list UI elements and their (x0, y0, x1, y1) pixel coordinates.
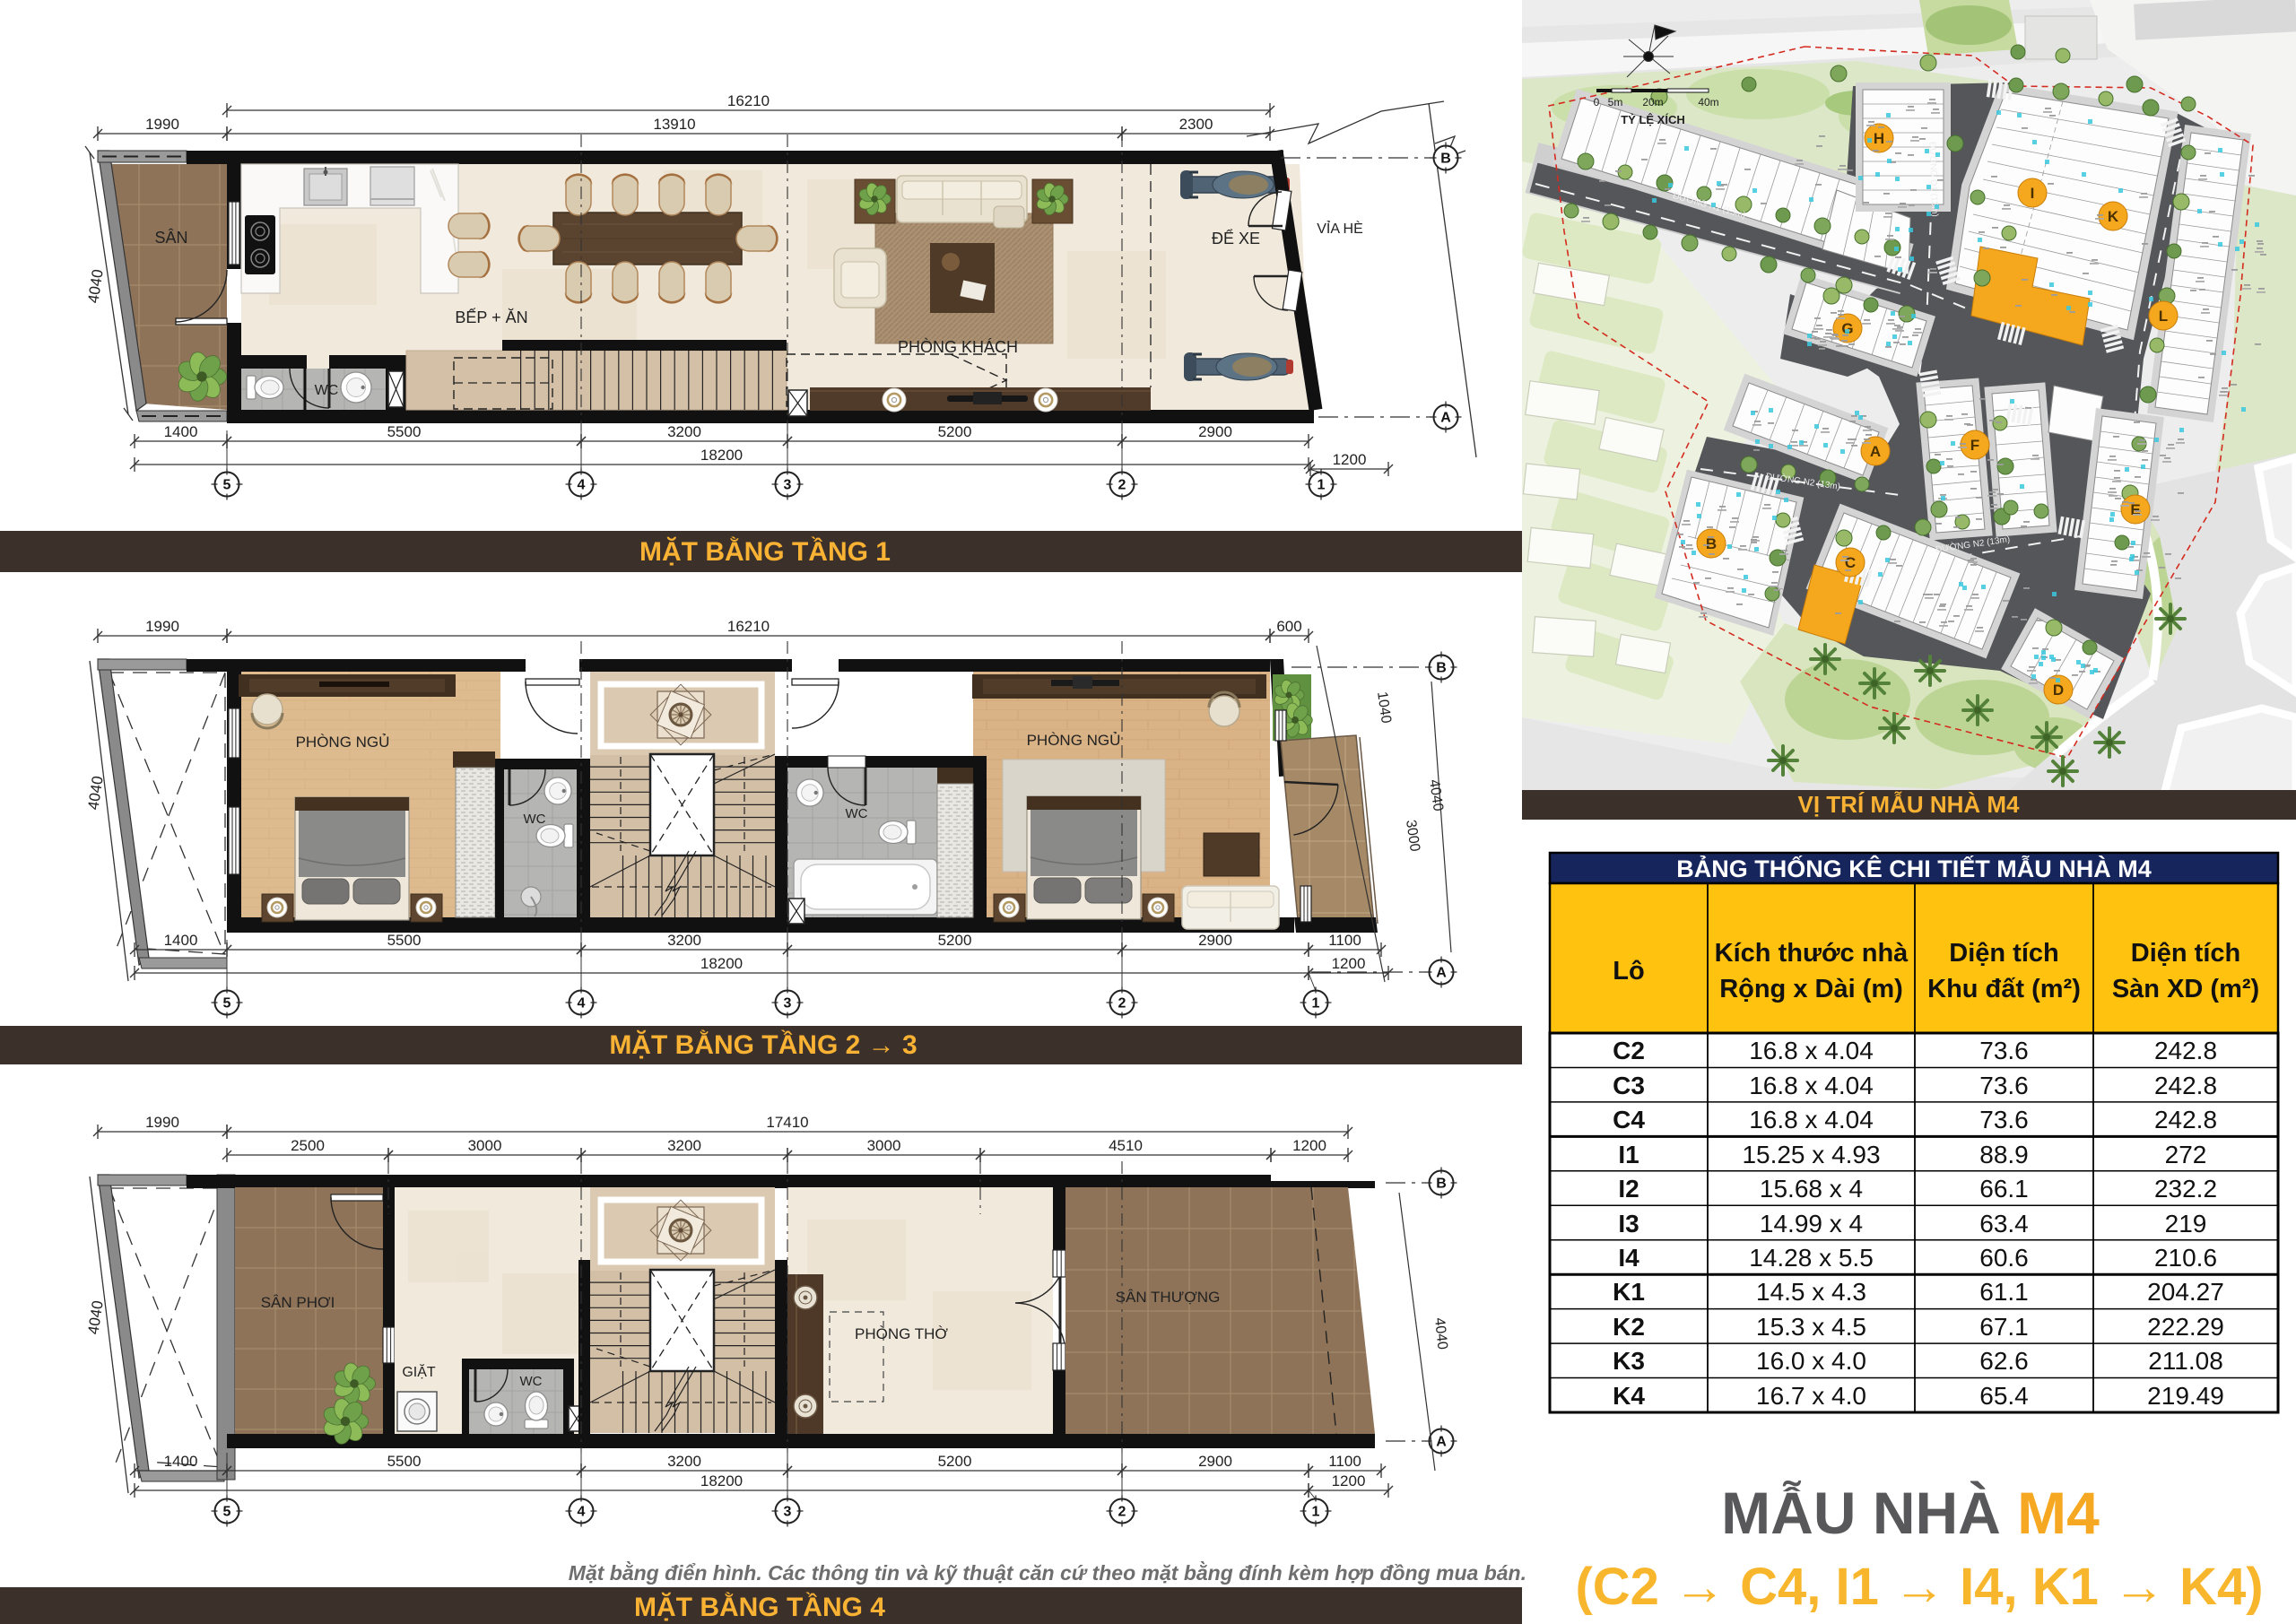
svg-text:219: 219 (2165, 1210, 2207, 1238)
svg-text:5m: 5m (1608, 96, 1623, 109)
svg-text:1200: 1200 (1332, 955, 1366, 972)
svg-text:2300: 2300 (1179, 116, 1213, 133)
svg-text:18200: 18200 (700, 955, 743, 972)
svg-text:A: A (1436, 966, 1447, 981)
svg-text:(C2 → C4, I1 → I4, K1 → K4): (C2 → C4, I1 → I4, K1 → K4) (1575, 1558, 2263, 1616)
svg-text:C4: C4 (1613, 1106, 1645, 1133)
svg-text:I3: I3 (1618, 1210, 1639, 1238)
svg-text:5200: 5200 (938, 932, 972, 949)
svg-text:4: 4 (578, 478, 586, 493)
svg-text:I2: I2 (1618, 1175, 1639, 1203)
svg-text:3200: 3200 (667, 1453, 701, 1470)
svg-text:2: 2 (1118, 1505, 1126, 1520)
svg-text:4: 4 (578, 996, 586, 1012)
svg-text:PHÒNG NGỦ: PHÒNG NGỦ (296, 734, 390, 751)
svg-text:I1: I1 (1618, 1141, 1639, 1168)
svg-text:211.08: 211.08 (2148, 1347, 2223, 1375)
svg-text:1: 1 (1318, 478, 1326, 493)
svg-text:232.2: 232.2 (2154, 1175, 2217, 1203)
svg-text:BẾP + ĂN: BẾP + ĂN (455, 308, 527, 326)
svg-text:A: A (1436, 1435, 1447, 1450)
svg-text:0: 0 (1594, 96, 1600, 109)
svg-text:WC: WC (846, 806, 868, 821)
svg-text:2500: 2500 (291, 1137, 325, 1154)
svg-text:BẢNG THỐNG KÊ CHI TIẾT MẪU NHÀ: BẢNG THỐNG KÊ CHI TIẾT MẪU NHÀ M4 (1676, 854, 2152, 882)
svg-text:VỊ TRÍ MẪU NHÀ M4: VỊ TRÍ MẪU NHÀ M4 (1798, 791, 2021, 818)
svg-text:WC: WC (315, 383, 339, 398)
svg-text:1100: 1100 (1328, 1453, 1361, 1470)
svg-text:WC: WC (520, 1374, 543, 1389)
svg-text:MẶT BẰNG TẦNG 1: MẶT BẰNG TẦNG 1 (639, 536, 891, 567)
svg-text:1100: 1100 (1328, 932, 1361, 949)
svg-text:PHÒNG THỜ: PHÒNG THỜ (855, 1325, 948, 1342)
svg-text:I: I (2031, 185, 2035, 202)
svg-text:16.0 x 4.0: 16.0 x 4.0 (1756, 1347, 1866, 1375)
svg-text:15.25 x 4.93: 15.25 x 4.93 (1742, 1141, 1880, 1168)
svg-text:60.6: 60.6 (1979, 1244, 2029, 1272)
svg-text:1400: 1400 (164, 1453, 198, 1470)
svg-text:16.8 x 4.04: 16.8 x 4.04 (1749, 1037, 1874, 1064)
svg-text:MẪU NHÀ M4: MẪU NHÀ M4 (1721, 1480, 2100, 1546)
svg-text:14.28 x 5.5: 14.28 x 5.5 (1749, 1244, 1874, 1272)
svg-text:5: 5 (223, 1505, 231, 1520)
svg-text:222.29: 222.29 (2147, 1313, 2224, 1341)
svg-text:GIẶT: GIẶT (402, 1363, 436, 1380)
svg-text:16.8 x 4.04: 16.8 x 4.04 (1749, 1072, 1874, 1099)
svg-text:3200: 3200 (667, 932, 701, 949)
svg-text:I4: I4 (1618, 1244, 1639, 1272)
svg-text:1200: 1200 (1332, 1472, 1366, 1489)
svg-text:K1: K1 (1613, 1278, 1645, 1306)
svg-text:PHÒNG KHÁCH: PHÒNG KHÁCH (898, 337, 1018, 356)
svg-text:PHÒNG NGỦ: PHÒNG NGỦ (1027, 732, 1121, 749)
svg-text:3200: 3200 (667, 423, 701, 440)
svg-text:Diện tích: Diện tích (2131, 939, 2240, 968)
svg-text:5: 5 (223, 478, 231, 493)
svg-text:61.1: 61.1 (1979, 1278, 2029, 1306)
svg-text:16.8 x 4.04: 16.8 x 4.04 (1749, 1106, 1874, 1133)
svg-text:Khu đất (m²): Khu đất (m²) (1927, 975, 2081, 1003)
svg-text:1: 1 (1312, 996, 1320, 1012)
svg-text:17410: 17410 (766, 1114, 808, 1131)
svg-text:204.27: 204.27 (2147, 1278, 2224, 1306)
svg-text:1: 1 (1312, 1505, 1320, 1520)
svg-text:5: 5 (223, 996, 231, 1012)
svg-text:Sàn XD (m²): Sàn XD (m²) (2112, 975, 2259, 1003)
svg-text:16210: 16210 (727, 618, 770, 635)
svg-text:SÂN PHƠI: SÂN PHƠI (261, 1294, 335, 1311)
svg-text:1990: 1990 (145, 1114, 179, 1131)
svg-text:K3: K3 (1613, 1347, 1645, 1375)
svg-text:3000: 3000 (867, 1137, 901, 1154)
svg-text:Rộng x Dài (m): Rộng x Dài (m) (1719, 975, 1903, 1003)
svg-text:2: 2 (1118, 478, 1126, 493)
svg-text:210.6: 210.6 (2154, 1244, 2217, 1272)
svg-text:67.1: 67.1 (1979, 1313, 2029, 1341)
svg-text:VỈA HÈ: VỈA HÈ (1317, 220, 1363, 237)
svg-text:5500: 5500 (387, 1453, 422, 1470)
svg-text:MẶT BẰNG TẦNG 2 → 3: MẶT BẰNG TẦNG 2 → 3 (609, 1029, 917, 1060)
svg-text:5500: 5500 (387, 423, 422, 440)
svg-text:SÂN THƯỢNG: SÂN THƯỢNG (1116, 1289, 1221, 1306)
svg-text:14.99 x 4: 14.99 x 4 (1760, 1210, 1863, 1238)
svg-text:16210: 16210 (727, 92, 770, 109)
svg-text:5200: 5200 (938, 1453, 972, 1470)
svg-text:242.8: 242.8 (2154, 1072, 2217, 1099)
svg-text:F: F (1970, 437, 1979, 454)
svg-text:3: 3 (784, 996, 792, 1012)
svg-text:62.6: 62.6 (1979, 1347, 2029, 1375)
svg-text:A: A (1870, 443, 1881, 460)
svg-text:WC: WC (524, 812, 546, 827)
svg-text:219.49: 219.49 (2147, 1382, 2224, 1410)
svg-text:C3: C3 (1613, 1072, 1645, 1099)
svg-text:20m: 20m (1642, 96, 1663, 109)
svg-text:3200: 3200 (667, 1137, 701, 1154)
svg-text:A: A (1440, 411, 1451, 426)
svg-text:88.9: 88.9 (1979, 1141, 2029, 1168)
svg-text:B: B (1436, 661, 1447, 676)
svg-text:1200: 1200 (1292, 1137, 1326, 1154)
svg-text:E: E (2130, 501, 2140, 518)
svg-text:63.4: 63.4 (1979, 1210, 2029, 1238)
svg-text:16.7 x 4.0: 16.7 x 4.0 (1756, 1382, 1866, 1410)
svg-text:SÂN: SÂN (154, 229, 187, 247)
svg-text:MẶT BẰNG TẦNG 4: MẶT BẰNG TẦNG 4 (634, 1592, 885, 1622)
svg-text:1990: 1990 (145, 618, 179, 635)
svg-text:18200: 18200 (700, 1472, 743, 1489)
svg-text:5500: 5500 (387, 932, 422, 949)
svg-text:2900: 2900 (1198, 423, 1232, 440)
svg-text:272: 272 (2165, 1141, 2207, 1168)
svg-text:1400: 1400 (164, 932, 198, 949)
svg-text:18200: 18200 (700, 447, 743, 464)
svg-text:15.68 x 4: 15.68 x 4 (1760, 1175, 1863, 1203)
svg-text:B: B (1440, 152, 1451, 167)
svg-text:B: B (1706, 535, 1717, 552)
svg-text:Mặt bằng điển hình. Các thông: Mặt bằng điển hình. Các thông tin và kỹ … (569, 1560, 1526, 1585)
svg-text:Kích thước nhà: Kích thước nhà (1715, 939, 1909, 968)
svg-text:3000: 3000 (468, 1137, 502, 1154)
svg-text:K4: K4 (1613, 1382, 1645, 1410)
svg-text:15.3 x 4.5: 15.3 x 4.5 (1756, 1313, 1866, 1341)
svg-text:2900: 2900 (1198, 932, 1232, 949)
svg-text:D: D (2053, 682, 2064, 699)
svg-text:B: B (1436, 1177, 1447, 1192)
svg-text:K2: K2 (1613, 1313, 1645, 1341)
svg-text:2: 2 (1118, 996, 1126, 1012)
svg-text:1200: 1200 (1333, 451, 1367, 468)
svg-text:600: 600 (1276, 618, 1301, 635)
svg-text:C2: C2 (1613, 1037, 1645, 1064)
svg-text:Lô: Lô (1613, 957, 1644, 986)
svg-text:73.6: 73.6 (1979, 1072, 2029, 1099)
svg-text:65.4: 65.4 (1979, 1382, 2029, 1410)
svg-text:ĐỂ XE: ĐỂ XE (1212, 229, 1260, 248)
svg-text:13910: 13910 (653, 116, 695, 133)
svg-text:1400: 1400 (164, 423, 198, 440)
svg-text:H: H (1874, 130, 1884, 147)
svg-text:Diện tích: Diện tích (1949, 939, 2058, 968)
svg-text:66.1: 66.1 (1979, 1175, 2029, 1203)
svg-text:3: 3 (784, 1505, 792, 1520)
svg-text:3: 3 (784, 478, 792, 493)
svg-text:14.5 x 4.3: 14.5 x 4.3 (1756, 1278, 1866, 1306)
svg-text:4: 4 (578, 1505, 586, 1520)
svg-text:73.6: 73.6 (1979, 1037, 2029, 1064)
svg-text:5200: 5200 (938, 423, 972, 440)
svg-text:73.6: 73.6 (1979, 1106, 2029, 1133)
svg-text:L: L (2159, 308, 2168, 325)
svg-text:1990: 1990 (145, 116, 179, 133)
svg-text:242.8: 242.8 (2154, 1037, 2217, 1064)
svg-text:242.8: 242.8 (2154, 1106, 2217, 1133)
svg-text:K: K (2108, 208, 2119, 225)
svg-text:40m: 40m (1698, 96, 1718, 109)
svg-text:TỶ LỆ XÍCH: TỶ LỆ XÍCH (1621, 113, 1685, 126)
svg-text:2900: 2900 (1198, 1453, 1232, 1470)
svg-text:4510: 4510 (1109, 1137, 1143, 1154)
